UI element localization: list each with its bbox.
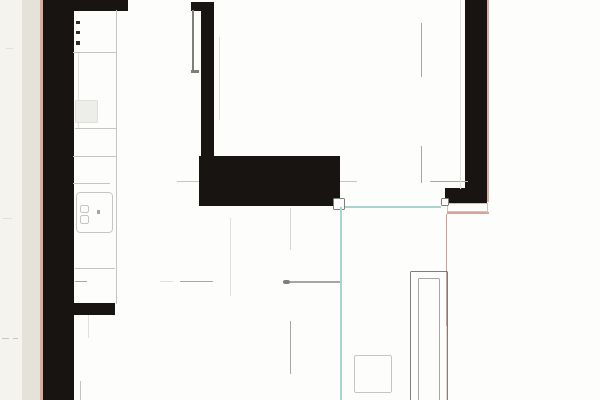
counter-divider-1 [73,52,117,53]
corner-marker-right [441,198,449,207]
dash-line-181-a [177,181,199,182]
dash-line-281-a [75,281,87,282]
red-scan-line-wall-edge [487,0,489,202]
cooktop [75,100,98,123]
wall-top-left [62,0,128,11]
dash-v-290-upper [290,208,291,250]
door-leaf-line [192,10,194,72]
wall-center-block [199,156,340,206]
teal-reference-line-h [345,206,441,208]
floor-square [354,355,393,393]
right-wall-inner-line [460,0,461,189]
counter-divider-4 [73,183,110,184]
red-scan-line-v [446,214,448,326]
margin-smudge-2 [13,338,18,339]
wall-right-foot [445,188,487,203]
page-margin-inner [22,0,40,400]
wall-dot-3 [76,41,80,45]
floor-plan-canvas [0,0,600,400]
margin-smudge-1 [2,338,9,339]
faint-line-under-stub-b [80,381,81,400]
wall-kitchen-stub [63,303,115,315]
dash-line-281-b [160,281,173,282]
counter-divider-3 [73,156,116,157]
dash-v-290-lower [290,321,292,374]
dash-arrowhead [283,280,290,284]
center-faint-line [219,37,220,120]
dash-line-181-c [430,181,468,182]
threshold-sill [447,203,488,212]
teal-reference-line-v [340,207,342,400]
counter-divider-5 [75,268,115,269]
red-scan-line-threshold [447,212,489,214]
margin-smudge-3 [3,218,12,219]
sink-faucet-lower [80,215,89,224]
counter-divider-2 [75,128,116,129]
sink-knob-dot [97,210,101,214]
dash-line-281-c [180,281,213,282]
wall-dot-1 [76,21,80,25]
page-margin-outer [0,0,22,400]
wall-dot-2 [76,31,80,35]
sink-faucet-upper [80,205,89,213]
wall-center [201,2,214,158]
dash-line-281-d [283,281,340,283]
red-scan-line-v-faint [446,326,447,400]
door-jamb-line-lower [421,146,422,183]
door-leaf-foot [191,70,199,73]
wall-left [43,0,74,400]
dash-line-181-b [340,181,357,182]
mid-room-faint-line [230,218,231,296]
wall-right [465,0,487,202]
faint-line-under-stub-a [88,315,89,338]
door-jamb-line-upper [421,23,422,77]
corner-marker-block [333,198,346,210]
shaft-inner-frame [418,278,440,400]
margin-smudge-4 [6,48,13,49]
